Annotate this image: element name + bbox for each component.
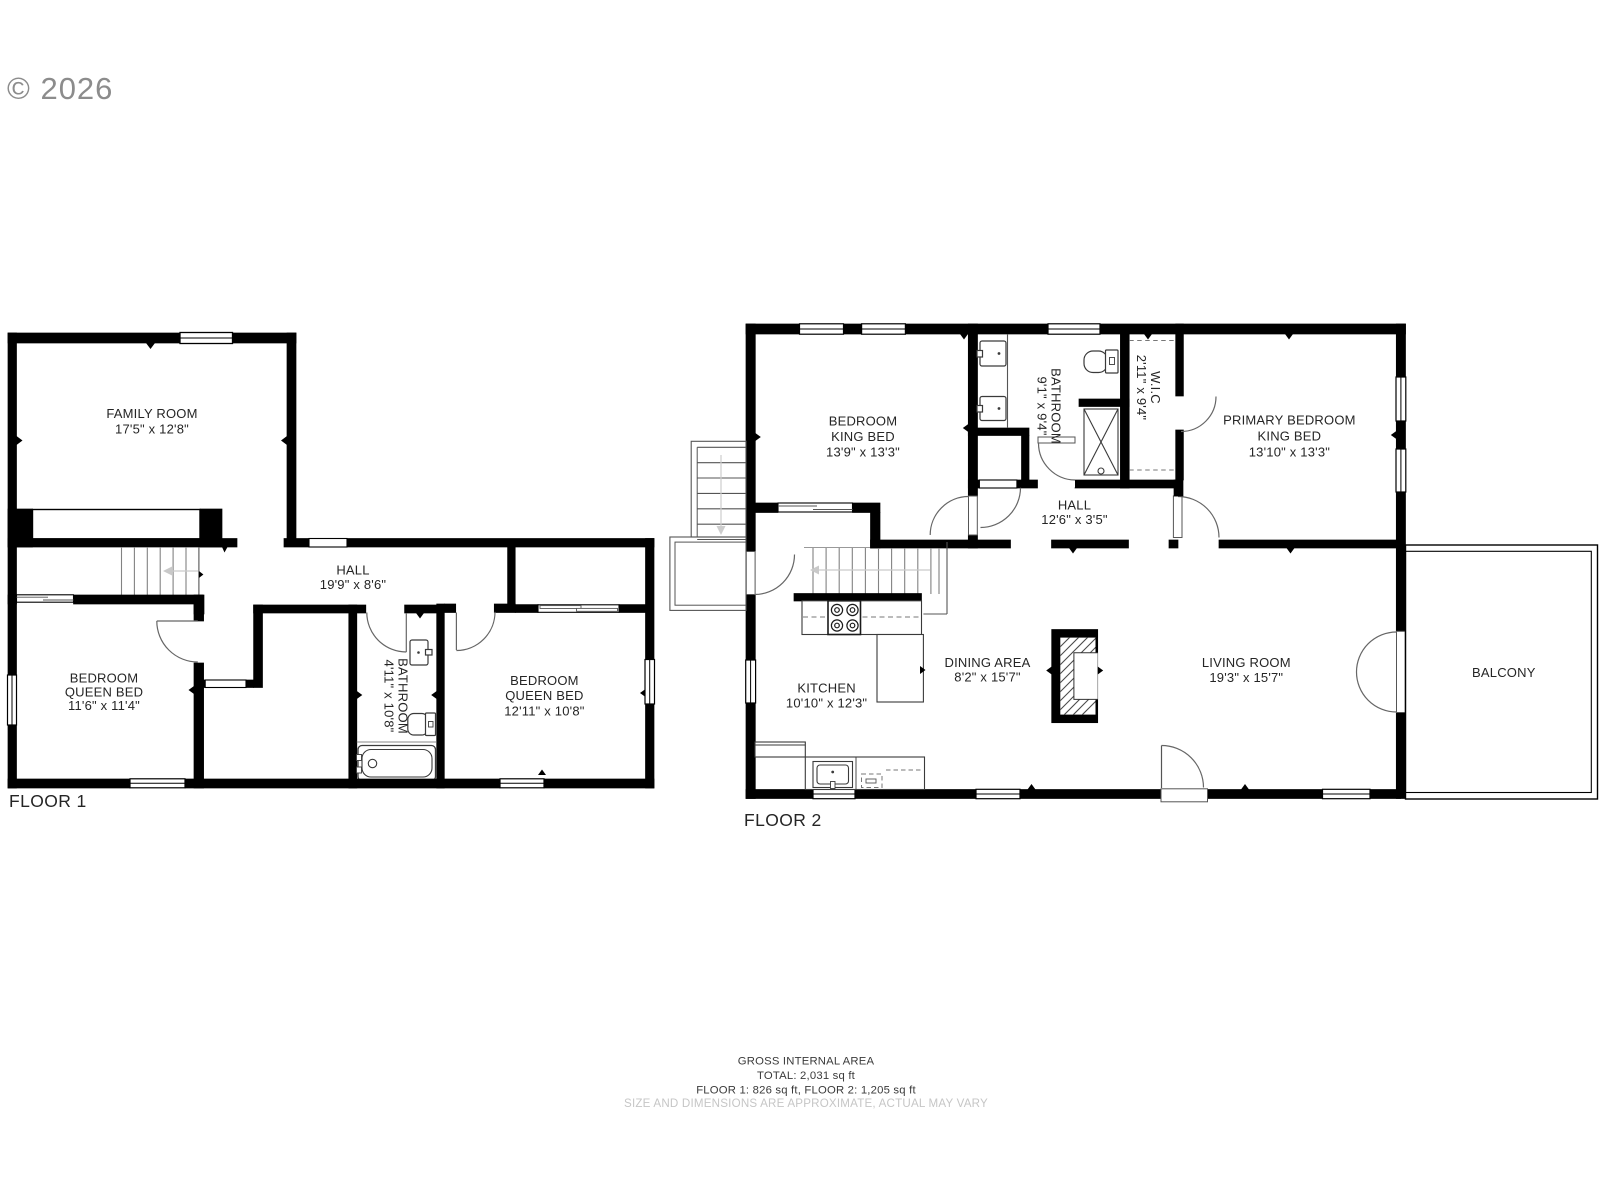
svg-text:FLOOR 2: FLOOR 2: [744, 810, 822, 830]
svg-text:BEDROOM: BEDROOM: [510, 673, 579, 688]
svg-text:12'6" x 3'5": 12'6" x 3'5": [1041, 512, 1108, 527]
svg-text:W.I.C: W.I.C: [1148, 371, 1163, 404]
svg-text:DINING AREA: DINING AREA: [945, 655, 1031, 670]
svg-text:HALL: HALL: [336, 563, 369, 578]
svg-text:BATHROOM: BATHROOM: [1049, 368, 1064, 444]
svg-text:FLOOR 1: FLOOR 1: [9, 791, 87, 811]
svg-text:PRIMARY BEDROOM: PRIMARY BEDROOM: [1223, 412, 1356, 427]
svg-text:2'11" x 9'4": 2'11" x 9'4": [1134, 355, 1149, 421]
svg-text:QUEEN BED: QUEEN BED: [505, 688, 583, 703]
svg-text:19'3" x 15'7": 19'3" x 15'7": [1209, 670, 1283, 685]
svg-text:LIVING ROOM: LIVING ROOM: [1202, 655, 1291, 670]
svg-text:13'10" x 13'3": 13'10" x 13'3": [1249, 445, 1331, 460]
svg-text:KING BED: KING BED: [831, 429, 895, 444]
svg-text:BEDROOM: BEDROOM: [829, 414, 898, 429]
svg-text:KITCHEN: KITCHEN: [797, 681, 855, 696]
svg-text:KING BED: KING BED: [1258, 429, 1322, 444]
svg-text:BEDROOM: BEDROOM: [70, 671, 139, 686]
svg-text:8'2" x 15'7": 8'2" x 15'7": [954, 670, 1021, 685]
svg-text:10'10" x 12'3": 10'10" x 12'3": [786, 696, 868, 711]
svg-text:12'11" x 10'8": 12'11" x 10'8": [504, 703, 585, 718]
svg-text:BATHROOM: BATHROOM: [396, 658, 411, 734]
svg-text:13'9" x 13'3": 13'9" x 13'3": [826, 445, 900, 460]
svg-text:4'11" x 10'8": 4'11" x 10'8": [382, 660, 397, 733]
svg-text:11'6" x 11'4": 11'6" x 11'4": [68, 698, 140, 713]
svg-text:FAMILY ROOM: FAMILY ROOM: [106, 406, 197, 421]
svg-text:SIZE AND DIMENSIONS ARE APPROX: SIZE AND DIMENSIONS ARE APPROXIMATE, ACT…: [624, 1097, 988, 1110]
svg-text:TOTAL: 2,031 sq ft: TOTAL: 2,031 sq ft: [757, 1070, 856, 1082]
svg-text:GROSS INTERNAL AREA: GROSS INTERNAL AREA: [738, 1056, 875, 1068]
svg-text:FLOOR 1: 826 sq ft, FLOOR 2: 1: FLOOR 1: 826 sq ft, FLOOR 2: 1,205 sq ft: [696, 1084, 916, 1096]
svg-text:BALCONY: BALCONY: [1472, 665, 1536, 680]
svg-text:HALL: HALL: [1058, 498, 1091, 513]
svg-text:9'1" x 9'4": 9'1" x 9'4": [1035, 376, 1050, 435]
svg-text:© 2026: © 2026: [7, 71, 113, 106]
svg-text:19'9" x 8'6": 19'9" x 8'6": [320, 577, 387, 592]
svg-text:17'5" x 12'8": 17'5" x 12'8": [115, 422, 189, 437]
